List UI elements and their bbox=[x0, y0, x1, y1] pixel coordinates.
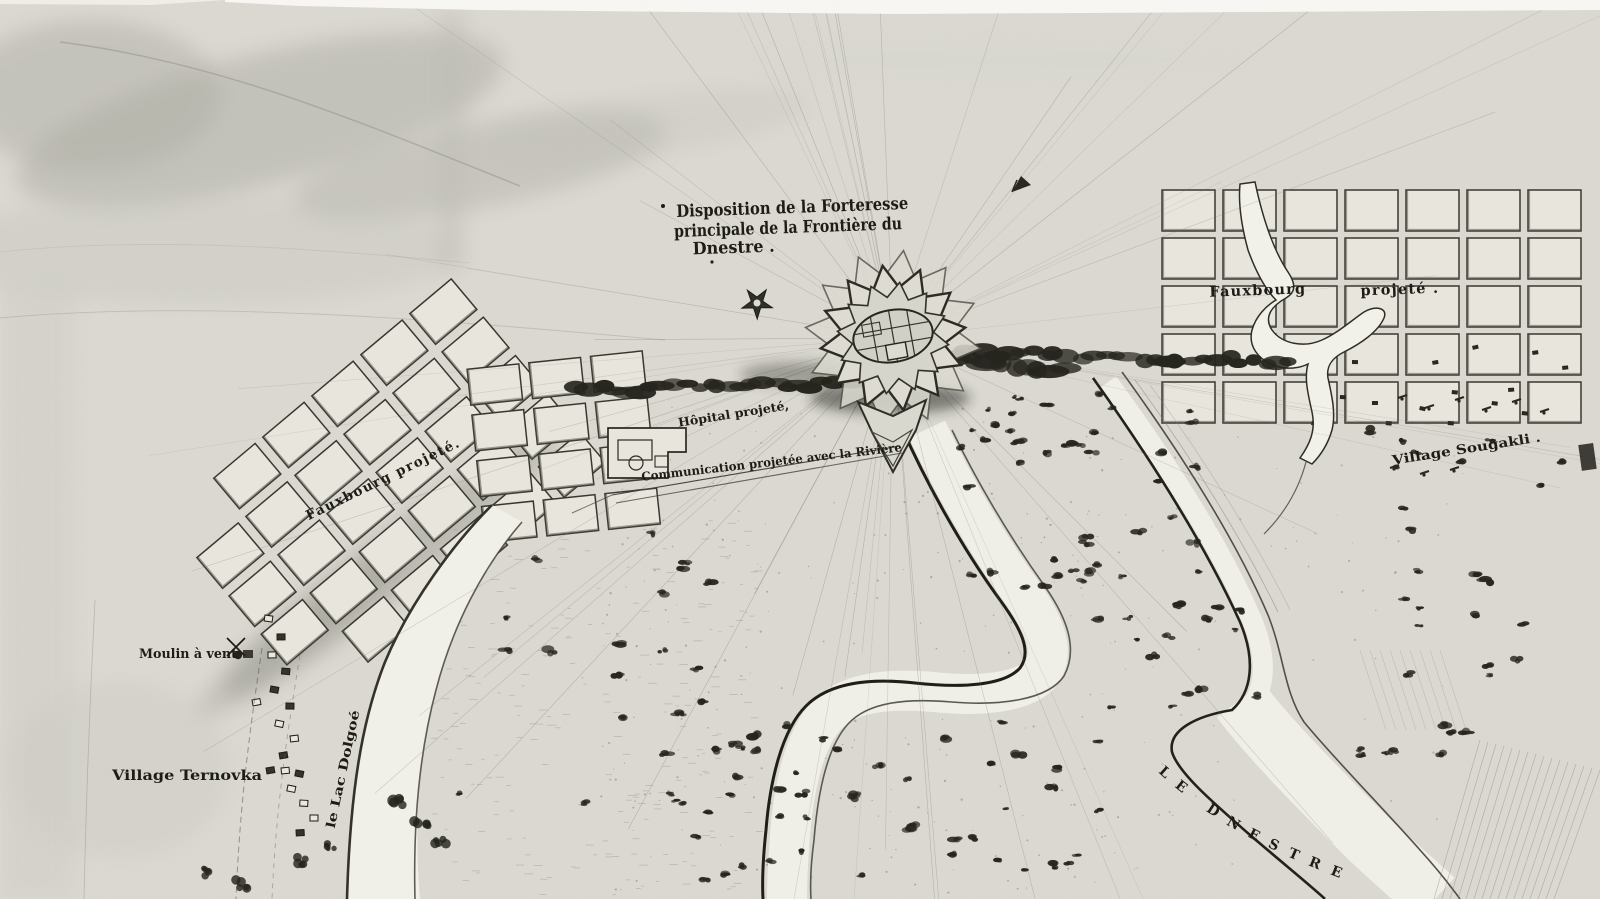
house bbox=[300, 800, 308, 806]
label-faubourg-right-1: Fauxbourg bbox=[1209, 280, 1307, 300]
house bbox=[290, 735, 299, 742]
city-block bbox=[1162, 334, 1215, 375]
city-block bbox=[1528, 382, 1581, 423]
city-block bbox=[1528, 190, 1581, 231]
city-block bbox=[1406, 382, 1459, 423]
city-block bbox=[1467, 238, 1520, 279]
house bbox=[277, 634, 285, 640]
label-village-ternovka: Village Ternovka bbox=[111, 768, 262, 784]
map-title-line3: Dnestre . bbox=[692, 237, 775, 260]
house bbox=[286, 703, 294, 709]
map-canvas: Disposition de la Forteresse principale … bbox=[0, 0, 1600, 899]
house bbox=[266, 767, 275, 774]
house bbox=[264, 615, 273, 622]
city-block bbox=[1345, 238, 1398, 279]
city-block bbox=[1284, 238, 1337, 279]
city-block bbox=[1528, 334, 1581, 375]
city-block bbox=[1467, 334, 1520, 375]
city-block bbox=[1162, 238, 1215, 279]
house bbox=[252, 699, 261, 706]
city-block bbox=[1528, 286, 1581, 327]
label-faubourg-right-2: projeté . bbox=[1360, 280, 1439, 300]
city-block bbox=[1406, 334, 1459, 375]
city-block bbox=[1467, 190, 1520, 231]
house bbox=[296, 830, 304, 836]
city-block bbox=[1528, 238, 1581, 279]
dot-mark bbox=[710, 260, 713, 263]
house bbox=[287, 785, 296, 792]
house bbox=[270, 686, 279, 693]
city-block bbox=[1162, 286, 1215, 327]
house bbox=[279, 752, 288, 759]
label-moulin: Moulin à vent bbox=[139, 647, 237, 662]
city-block bbox=[1345, 190, 1398, 231]
house bbox=[268, 652, 276, 658]
city-block bbox=[1162, 190, 1215, 231]
house bbox=[310, 815, 318, 821]
house bbox=[275, 720, 284, 727]
city-block bbox=[1162, 382, 1215, 423]
city-block bbox=[1406, 238, 1459, 279]
city-block bbox=[1467, 286, 1520, 327]
city-block bbox=[1406, 190, 1459, 231]
house bbox=[281, 767, 290, 774]
house bbox=[281, 668, 289, 675]
title-bullet bbox=[661, 204, 665, 208]
house bbox=[295, 770, 304, 777]
city-block bbox=[1284, 190, 1337, 231]
